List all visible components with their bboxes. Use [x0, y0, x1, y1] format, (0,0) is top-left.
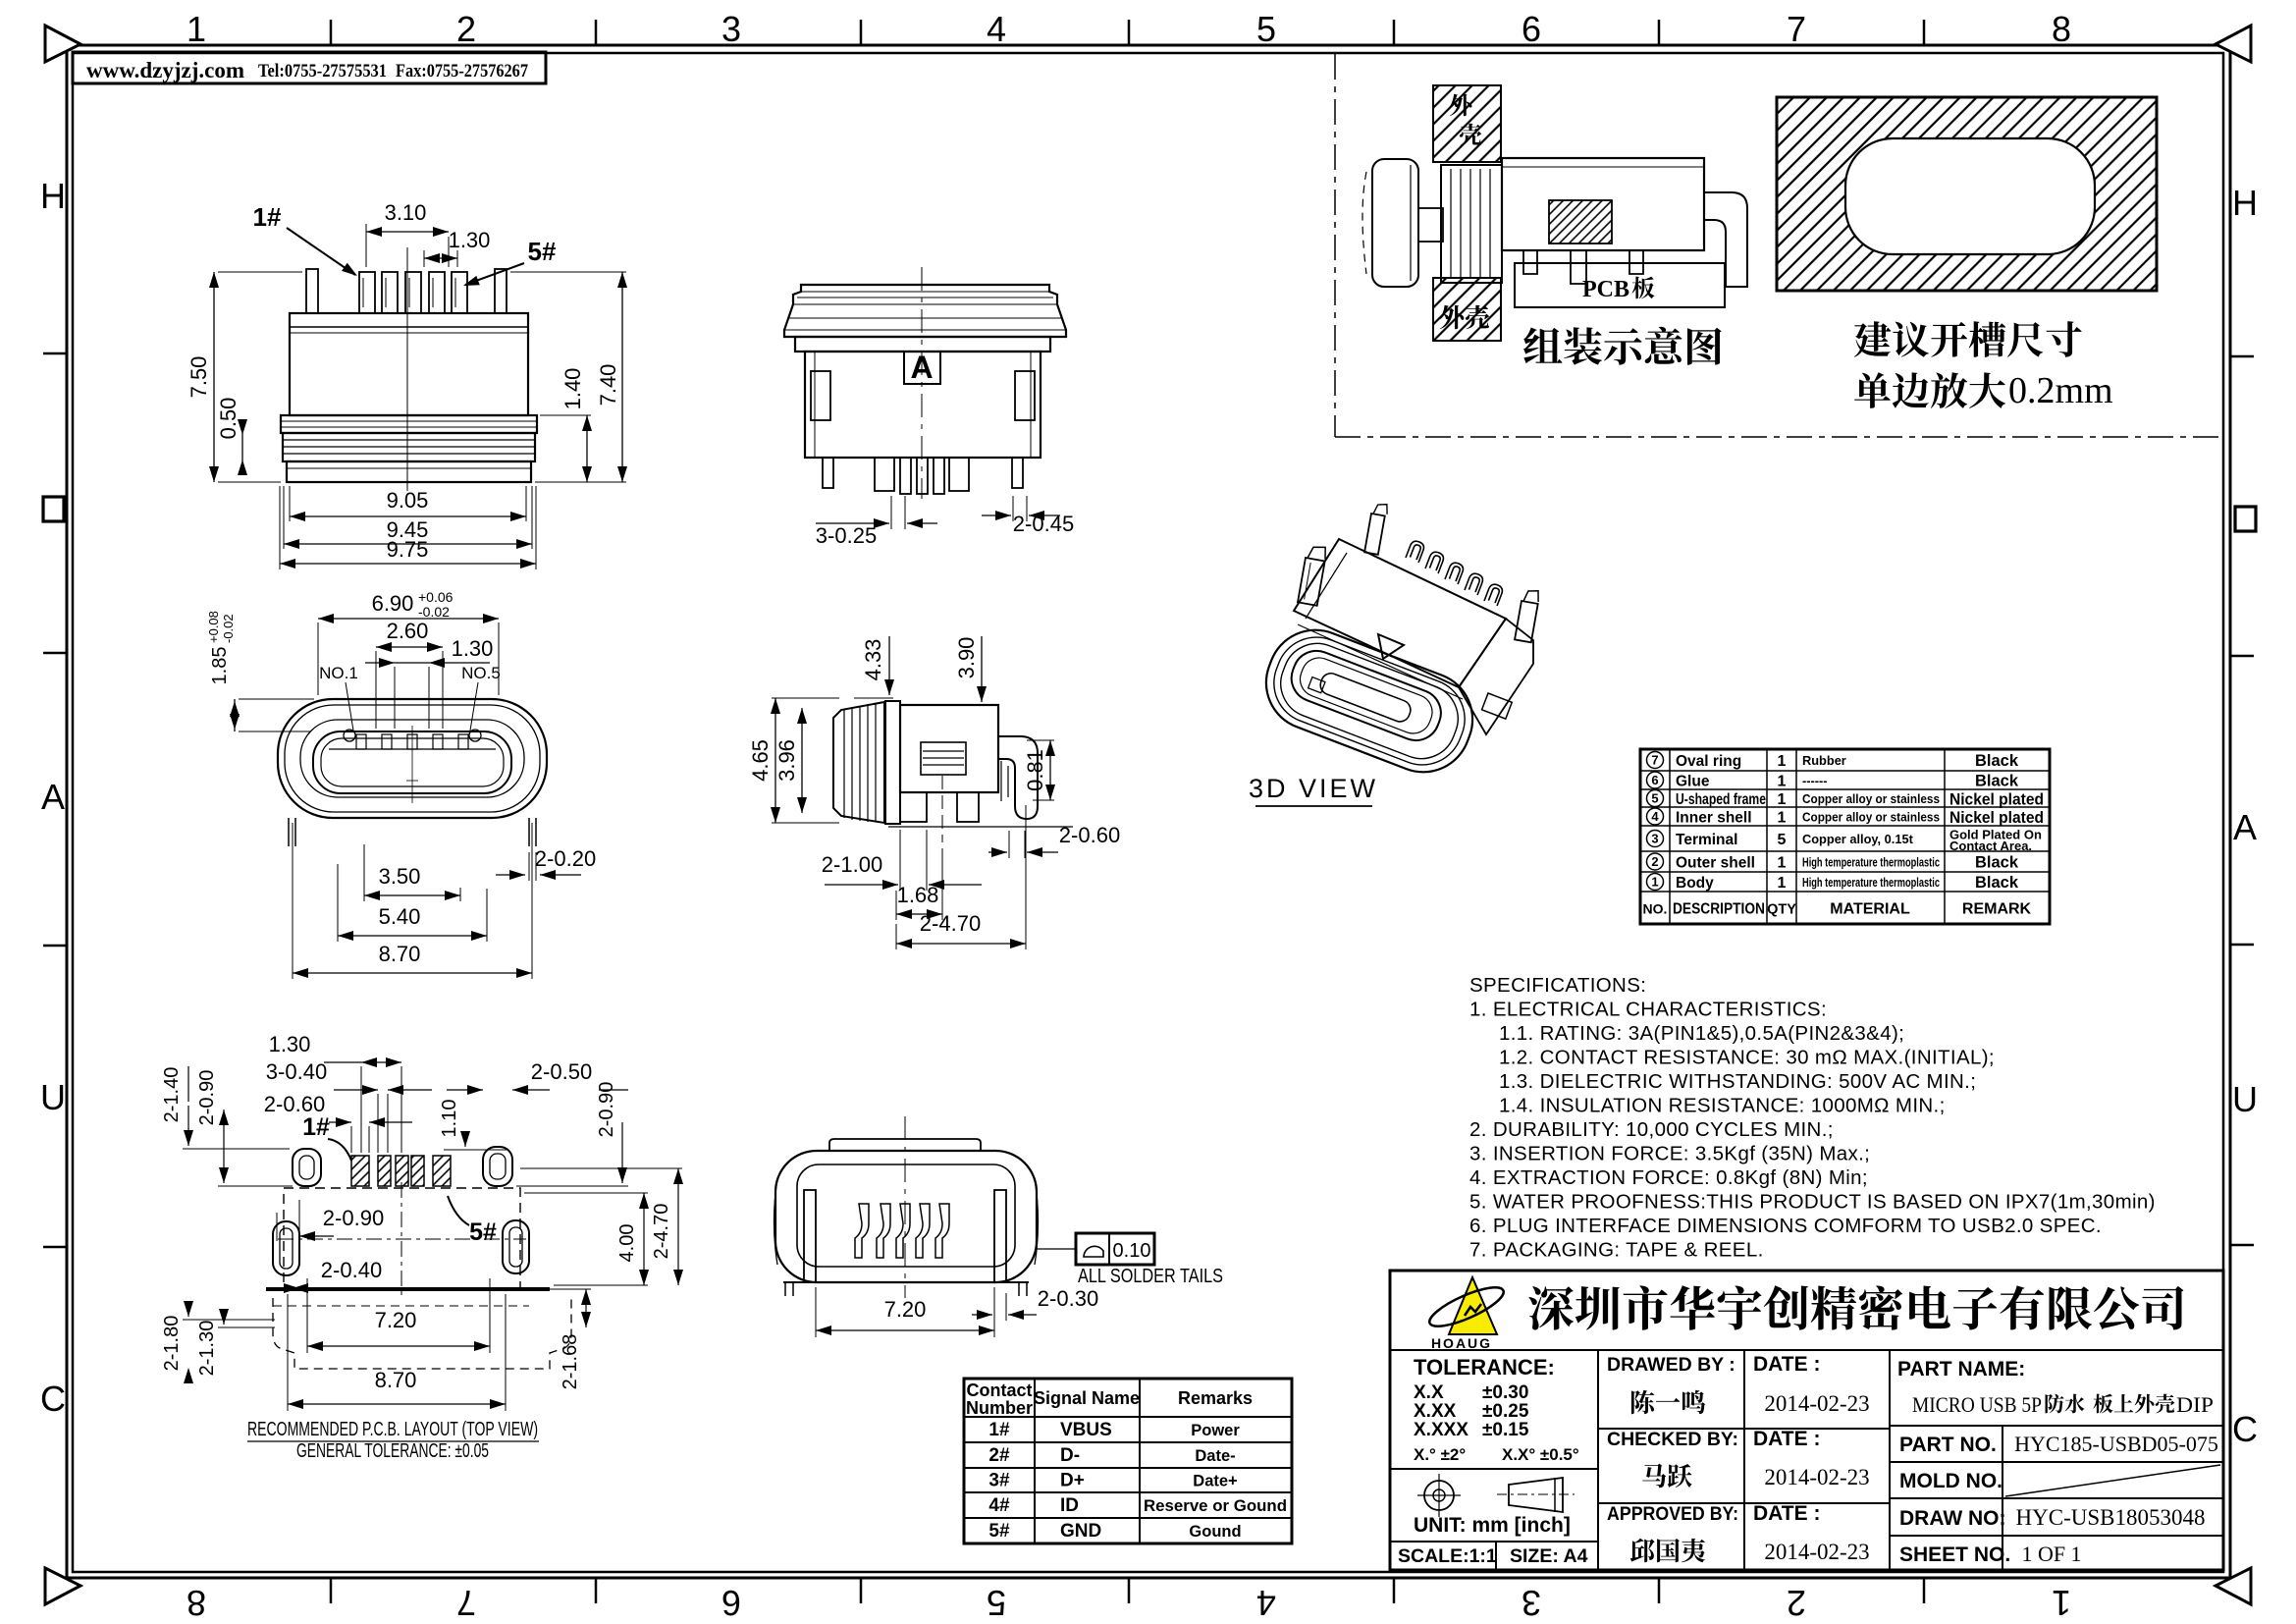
svg-text:1.3. DIELECTRIC WITHSTANDING: 1.3. DIELECTRIC WITHSTANDING: 500V AC MI… [1499, 1070, 1976, 1093]
svg-text:5#: 5# [469, 1218, 497, 1246]
svg-text:Contact Area.: Contact Area. [1949, 839, 2032, 853]
svg-text:4: 4 [1651, 809, 1659, 824]
svg-text:7.20: 7.20 [884, 1297, 927, 1322]
svg-text:2: 2 [1651, 854, 1658, 869]
svg-text:7. PACKAGING: TAPE & REEL.: 7. PACKAGING: TAPE & REEL. [1469, 1239, 1764, 1262]
svg-text:9.05: 9.05 [387, 488, 429, 513]
svg-text:C: C [40, 1379, 66, 1419]
svg-text:1.30: 1.30 [452, 636, 494, 661]
svg-text:1.4. INSULATION RESISTANCE:: 1.4. INSULATION RESISTANCE: 1000MΩ MIN.; [1499, 1095, 1946, 1117]
svg-text:Contact: Contact [967, 1380, 1033, 1400]
svg-text:Copper alloy or stainless: Copper alloy or stainless [1802, 810, 1940, 825]
svg-text:NO.: NO. [1643, 901, 1668, 917]
svg-text:2014-02-23: 2014-02-23 [1764, 1540, 1869, 1564]
svg-text:6: 6 [1522, 9, 1541, 49]
svg-text:2-4.70: 2-4.70 [920, 911, 981, 936]
svg-text:Body: Body [1676, 875, 1714, 892]
svg-text:GENERAL TOLERANCE: ±0.05: GENERAL TOLERANCE: ±0.05 [296, 1439, 489, 1462]
svg-text:REMARK: REMARK [1962, 901, 2032, 918]
svg-text:NO.1: NO.1 [319, 664, 358, 682]
svg-text:0.2mm: 0.2mm [2008, 370, 2113, 411]
svg-text:www.dzyjzj.com: www.dzyjzj.com [86, 58, 244, 82]
svg-text:Oval ring: Oval ring [1676, 753, 1741, 770]
svg-text:VBUS: VBUS [1060, 1420, 1112, 1440]
svg-text:HOAUG: HOAUG [1431, 1335, 1492, 1351]
svg-text:Terminal: Terminal [1676, 832, 1737, 848]
svg-text:2-1.00: 2-1.00 [822, 852, 882, 877]
svg-text:3.96: 3.96 [774, 739, 799, 782]
svg-text:4.00: 4.00 [616, 1224, 638, 1263]
svg-text:DATE :: DATE : [1753, 1353, 1820, 1376]
svg-text:7.40: 7.40 [596, 364, 620, 406]
svg-text:DATE :: DATE : [1753, 1502, 1820, 1525]
svg-text:Black: Black [1975, 773, 2019, 790]
svg-text:2-0.90: 2-0.90 [596, 1082, 617, 1138]
svg-text:Rubber: Rubber [1802, 753, 1846, 768]
svg-text:6.90: 6.90 [372, 591, 414, 616]
svg-text:PART NO.: PART NO. [1899, 1434, 1997, 1456]
svg-text:2: 2 [456, 9, 476, 49]
svg-text:2.60: 2.60 [387, 619, 429, 643]
svg-text:Date+: Date+ [1193, 1473, 1237, 1490]
svg-text:1: 1 [2052, 1583, 2071, 1623]
svg-text:SCALE:1:1: SCALE:1:1 [1398, 1545, 1497, 1567]
svg-text:D-: D- [1060, 1445, 1080, 1466]
svg-text:PART NAME:: PART NAME: [1897, 1358, 2025, 1380]
svg-text:2-0.20: 2-0.20 [535, 846, 596, 871]
svg-text:HYC-USB18053048: HYC-USB18053048 [2016, 1505, 2206, 1530]
svg-text:PCB: PCB [1582, 277, 1629, 302]
svg-text:Date-: Date- [1195, 1447, 1235, 1465]
svg-text:A: A [41, 777, 65, 817]
svg-text:1.2. CONTACT RESISTANCE: 30: 1.2. CONTACT RESISTANCE: 30 mΩ MAX.(INIT… [1499, 1047, 1995, 1069]
svg-text:Glue: Glue [1676, 774, 1710, 790]
svg-text:SIZE: A4: SIZE: A4 [1510, 1545, 1588, 1567]
svg-text:Number: Number [966, 1398, 1033, 1418]
svg-text:UNIT: mm [inch]: UNIT: mm [inch] [1414, 1514, 1571, 1537]
svg-text:2-0.40: 2-0.40 [321, 1258, 382, 1282]
svg-text:2-1.40: 2-1.40 [161, 1067, 183, 1123]
svg-text:7.20: 7.20 [375, 1308, 417, 1332]
svg-text:4#: 4# [988, 1495, 1010, 1516]
svg-text:2-0.50: 2-0.50 [531, 1059, 592, 1084]
svg-text:7: 7 [456, 1583, 476, 1623]
svg-text:0.50: 0.50 [216, 398, 240, 440]
svg-text:MICRO USB 5P: MICRO USB 5P [1912, 1392, 2042, 1417]
svg-text:RECOMMENDED P.C.B. LAYOUT (: RECOMMENDED P.C.B. LAYOUT (TOP VIEW) [247, 1418, 538, 1440]
svg-text:7: 7 [1787, 9, 1806, 49]
svg-text:1 OF 1: 1 OF 1 [2021, 1542, 2081, 1566]
svg-text:4. EXTRACTION FORCE: 0.8Kgf: 4. EXTRACTION FORCE: 0.8Kgf (8N) Min; [1469, 1166, 1868, 1189]
svg-text:3: 3 [721, 9, 741, 49]
svg-text:1.68: 1.68 [897, 883, 939, 907]
svg-text:X.X° ±0.5°: X.X° ±0.5° [1502, 1445, 1579, 1464]
svg-text:Fax:0755-27576267: Fax:0755-27576267 [396, 61, 528, 81]
svg-text:DIP: DIP [2176, 1392, 2214, 1417]
svg-text:8.70: 8.70 [379, 942, 421, 966]
svg-text:6: 6 [721, 1583, 741, 1623]
svg-text:Gound: Gound [1189, 1523, 1241, 1541]
svg-text:+0.06: +0.06 [418, 589, 454, 605]
svg-text:±0.15: ±0.15 [1482, 1420, 1529, 1440]
svg-text:5. WATER PROOFNESS:THIS PRO: 5. WATER PROOFNESS:THIS PRODUCT IS BASED… [1469, 1191, 2156, 1214]
svg-text:D+: D+ [1060, 1471, 1085, 1491]
svg-text:1#: 1# [988, 1420, 1010, 1440]
svg-text:2-4.70: 2-4.70 [651, 1204, 672, 1260]
svg-text:7.50: 7.50 [187, 356, 211, 399]
svg-text:2-0.90: 2-0.90 [196, 1070, 218, 1126]
svg-text:1#: 1# [253, 202, 282, 232]
svg-text:2014-02-23: 2014-02-23 [1764, 1391, 1869, 1416]
svg-text:1: 1 [1778, 791, 1787, 808]
svg-text:MATERIAL: MATERIAL [1830, 901, 1910, 918]
svg-text:4.65: 4.65 [748, 739, 773, 782]
svg-text:Nickel plated: Nickel plated [1949, 790, 2044, 809]
svg-text:5: 5 [987, 1583, 1006, 1623]
svg-text:U-shaped frame: U-shaped frame [1676, 791, 1766, 808]
svg-text:5: 5 [1778, 832, 1787, 848]
svg-text:5#: 5# [528, 237, 557, 266]
svg-text:High temperature thermoplastic: High temperature thermoplastic [1802, 875, 1940, 890]
svg-text:3.50: 3.50 [379, 864, 421, 889]
svg-text:Signal Name: Signal Name [1034, 1388, 1140, 1408]
svg-text:TOLERANCE:: TOLERANCE: [1414, 1355, 1555, 1380]
svg-text:2-0.90: 2-0.90 [323, 1206, 384, 1230]
svg-text:Power: Power [1191, 1422, 1240, 1439]
svg-text:1.30: 1.30 [449, 228, 491, 252]
svg-text:2-1.80: 2-1.80 [161, 1316, 183, 1372]
svg-text:1#: 1# [302, 1113, 330, 1141]
svg-text:3: 3 [1651, 832, 1658, 846]
svg-text:5: 5 [1256, 9, 1276, 49]
svg-text:Copper alloy or stainless: Copper alloy or stainless [1802, 791, 1940, 806]
svg-text:1.1. RATING: 3A(PIN1&5),0.5A: 1.1. RATING: 3A(PIN1&5),0.5A(PIN2&3&4); [1499, 1022, 1904, 1045]
svg-text:-0.02: -0.02 [418, 604, 450, 620]
svg-text:Reserve or Gound: Reserve or Gound [1144, 1497, 1287, 1515]
svg-text:NO.5: NO.5 [461, 664, 501, 682]
svg-text:X.XX: X.XX [1414, 1401, 1457, 1422]
svg-text:9.75: 9.75 [387, 537, 429, 562]
svg-text:Remarks: Remarks [1178, 1388, 1253, 1408]
svg-text:1: 1 [1778, 753, 1787, 770]
svg-text:2-0.60: 2-0.60 [1059, 823, 1120, 847]
svg-text:U: U [2232, 1079, 2258, 1119]
svg-text:3: 3 [1522, 1583, 1541, 1623]
svg-text:ALL SOLDER TAILS: ALL SOLDER TAILS [1078, 1265, 1223, 1287]
svg-text:C: C [2232, 1409, 2258, 1449]
svg-text:Black: Black [1975, 854, 2019, 872]
svg-text:X.X: X.X [1414, 1382, 1444, 1403]
svg-text:X.° ±2°: X.° ±2° [1414, 1445, 1466, 1464]
svg-text:±0.30: ±0.30 [1482, 1382, 1528, 1403]
svg-text:Copper alloy, 0.15t: Copper alloy, 0.15t [1802, 832, 1914, 846]
svg-text:APPROVED BY:: APPROVED BY: [1607, 1503, 1738, 1525]
svg-text:6. PLUG INTERFACE DIMENSION: 6. PLUG INTERFACE DIMENSIONS COMFORM TO … [1469, 1215, 2102, 1237]
svg-text:2: 2 [1787, 1583, 1806, 1623]
svg-text:8: 8 [2052, 9, 2071, 49]
svg-text:DRAWED BY :: DRAWED BY : [1607, 1354, 1735, 1376]
svg-text:MOLD NO.: MOLD NO. [1899, 1470, 2002, 1492]
svg-text:3. INSERTION FORCE: 3.5Kgf: 3. INSERTION FORCE: 3.5Kgf (35N) Max.; [1469, 1143, 1870, 1165]
svg-text:DRAW NO:: DRAW NO: [1899, 1507, 2006, 1530]
svg-text:5.40: 5.40 [379, 904, 421, 929]
svg-text:1: 1 [1651, 875, 1658, 890]
svg-text:1.85: 1.85 [209, 647, 231, 685]
svg-text:Black: Black [1975, 874, 2019, 892]
svg-text:A: A [910, 350, 933, 385]
svg-text:A: A [2233, 807, 2257, 847]
svg-text:5#: 5# [988, 1521, 1010, 1542]
svg-text:Outer shell: Outer shell [1676, 855, 1755, 872]
svg-text:1.30: 1.30 [269, 1032, 311, 1056]
svg-text:-0.02: -0.02 [221, 614, 236, 643]
svg-text:SPECIFICATIONS:: SPECIFICATIONS: [1469, 974, 1646, 997]
svg-text:1.10: 1.10 [439, 1100, 460, 1138]
svg-text:1.40: 1.40 [561, 368, 585, 410]
svg-text:8.70: 8.70 [375, 1368, 417, 1392]
svg-text:6: 6 [1651, 773, 1658, 787]
svg-text:H: H [2232, 183, 2258, 223]
svg-text:GND: GND [1060, 1521, 1101, 1542]
svg-text:Black: Black [1975, 752, 2019, 770]
svg-text:1: 1 [1778, 855, 1787, 872]
svg-text:4: 4 [987, 9, 1006, 49]
svg-text:2014-02-23: 2014-02-23 [1764, 1465, 1869, 1489]
svg-text:X.XXX: X.XXX [1414, 1420, 1468, 1440]
svg-text:CHECKED BY:: CHECKED BY: [1607, 1429, 1738, 1450]
svg-text:3-0.40: 3-0.40 [266, 1059, 327, 1084]
svg-text:4.33: 4.33 [861, 639, 885, 681]
svg-text:+0.08: +0.08 [206, 611, 221, 643]
svg-text:HYC185-USBD05-075: HYC185-USBD05-075 [2014, 1432, 2218, 1456]
svg-text:5: 5 [1651, 791, 1658, 806]
svg-text:1: 1 [1778, 774, 1787, 790]
svg-text:0.10: 0.10 [1113, 1240, 1151, 1262]
svg-text:2#: 2# [988, 1445, 1010, 1466]
svg-text:2. DURABILITY: 10,000 CYCLE: 2. DURABILITY: 10,000 CYCLES MIN.; [1469, 1118, 1834, 1141]
svg-text:SHEET NO.: SHEET NO. [1899, 1543, 2010, 1566]
svg-text:------: ------ [1802, 774, 1828, 788]
svg-text:2-1.68: 2-1.68 [560, 1334, 581, 1390]
svg-text:U: U [40, 1077, 66, 1117]
svg-text:7: 7 [1651, 753, 1658, 768]
svg-text:1: 1 [187, 9, 206, 49]
svg-text:3D VIEW: 3D VIEW [1249, 774, 1378, 803]
svg-text:3#: 3# [988, 1471, 1010, 1491]
svg-text:2-1.30: 2-1.30 [196, 1321, 218, 1377]
svg-text:Inner shell: Inner shell [1676, 810, 1752, 827]
svg-text:4: 4 [1256, 1583, 1276, 1623]
svg-text:1: 1 [1778, 875, 1787, 892]
svg-text:H: H [40, 176, 66, 216]
svg-text:DESCRIPTION: DESCRIPTION [1673, 901, 1765, 918]
svg-text:3-0.25: 3-0.25 [816, 523, 877, 548]
svg-text:0.81: 0.81 [1023, 749, 1047, 791]
svg-text:QTY: QTY [1767, 902, 1796, 918]
svg-text:Nickel plated: Nickel plated [1949, 808, 2044, 827]
svg-text:3.90: 3.90 [954, 637, 979, 679]
svg-text:1: 1 [1778, 810, 1787, 827]
svg-text:DATE :: DATE : [1753, 1428, 1820, 1450]
svg-text:1. ELECTRICAL CHARACTERISTIC: 1. ELECTRICAL CHARACTERISTICS: [1469, 999, 1827, 1021]
svg-text:3.10: 3.10 [385, 200, 427, 225]
svg-text:±0.25: ±0.25 [1482, 1401, 1529, 1422]
svg-text:Tel:0755-27575531: Tel:0755-27575531 [258, 61, 387, 81]
svg-text:High temperature thermoplastic: High temperature thermoplastic [1802, 855, 1940, 870]
svg-text:8: 8 [187, 1583, 206, 1623]
svg-text:2-0.30: 2-0.30 [1038, 1286, 1098, 1311]
svg-text:ID: ID [1060, 1495, 1079, 1516]
